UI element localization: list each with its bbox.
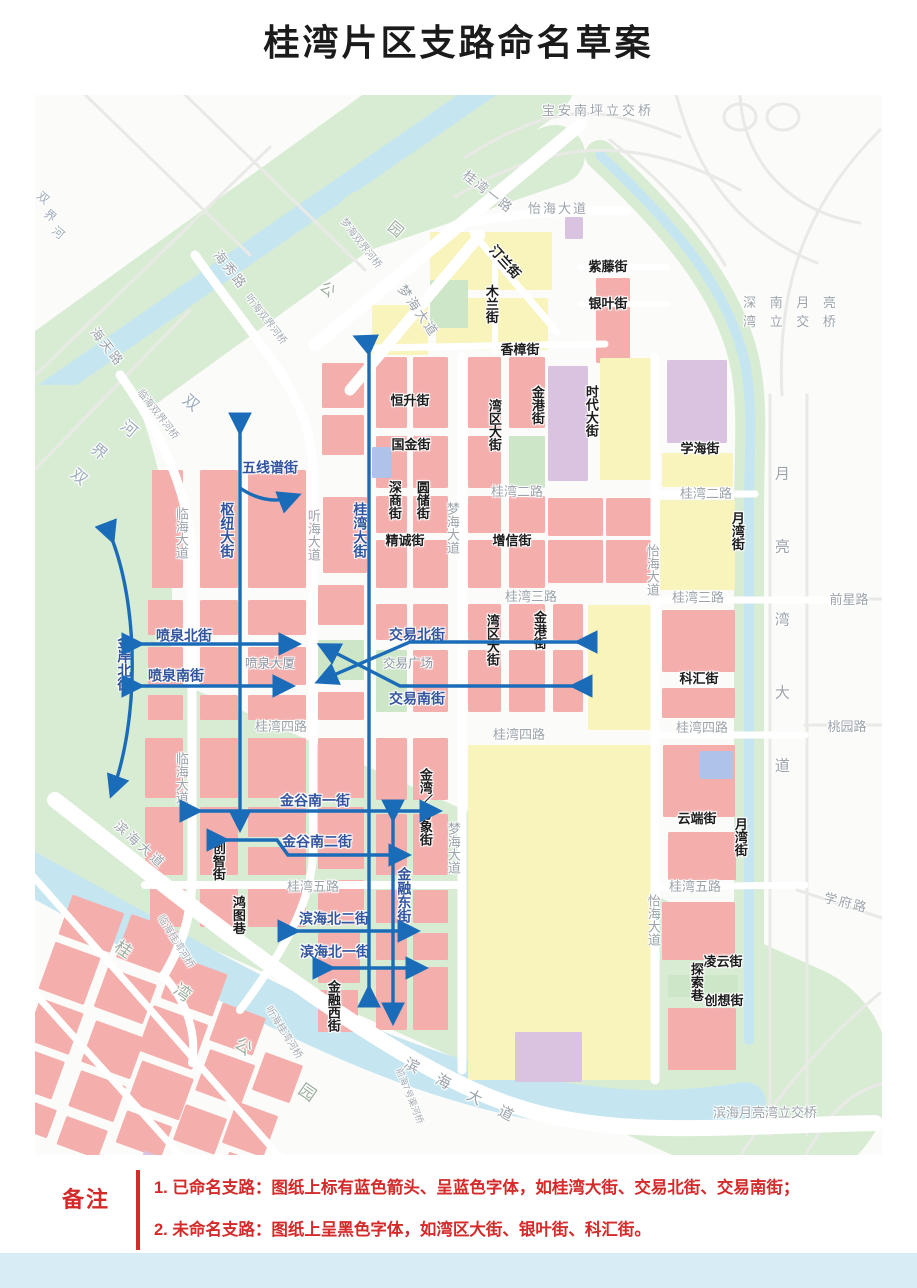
page-title: 桂湾片区支路命名草案	[0, 14, 917, 66]
jiaoyi-nan-jie-arrow	[322, 646, 575, 686]
note-line-1: 1. 已命名支路：图纸上标有蓝色箭头、呈蓝色字体，如桂湾大街、交易北街、交易南街…	[154, 1174, 854, 1198]
wuxianpu-jie-arrow	[240, 488, 296, 500]
jin-an-bei-jie-arrow	[112, 539, 132, 793]
note-line-2: 2. 未命名支路：图纸上呈黑色字体，如湾区大街、银叶街、科汇街。	[154, 1216, 854, 1240]
footer-strip	[0, 1253, 917, 1288]
map-canvas: 宝安南坪立交桥桂湾一路怡海大道海秀路海天路听海双界河桥梦海双界河桥临海双界河桥梦…	[35, 95, 882, 1155]
jingu-nan-2-jie-arrow	[224, 840, 406, 855]
notes-heading: 备注	[62, 1182, 110, 1214]
jiaoyi-bei-jie-arrow	[320, 642, 580, 681]
notes-divider	[136, 1170, 140, 1250]
named-street-arrows-layer	[35, 95, 882, 1155]
